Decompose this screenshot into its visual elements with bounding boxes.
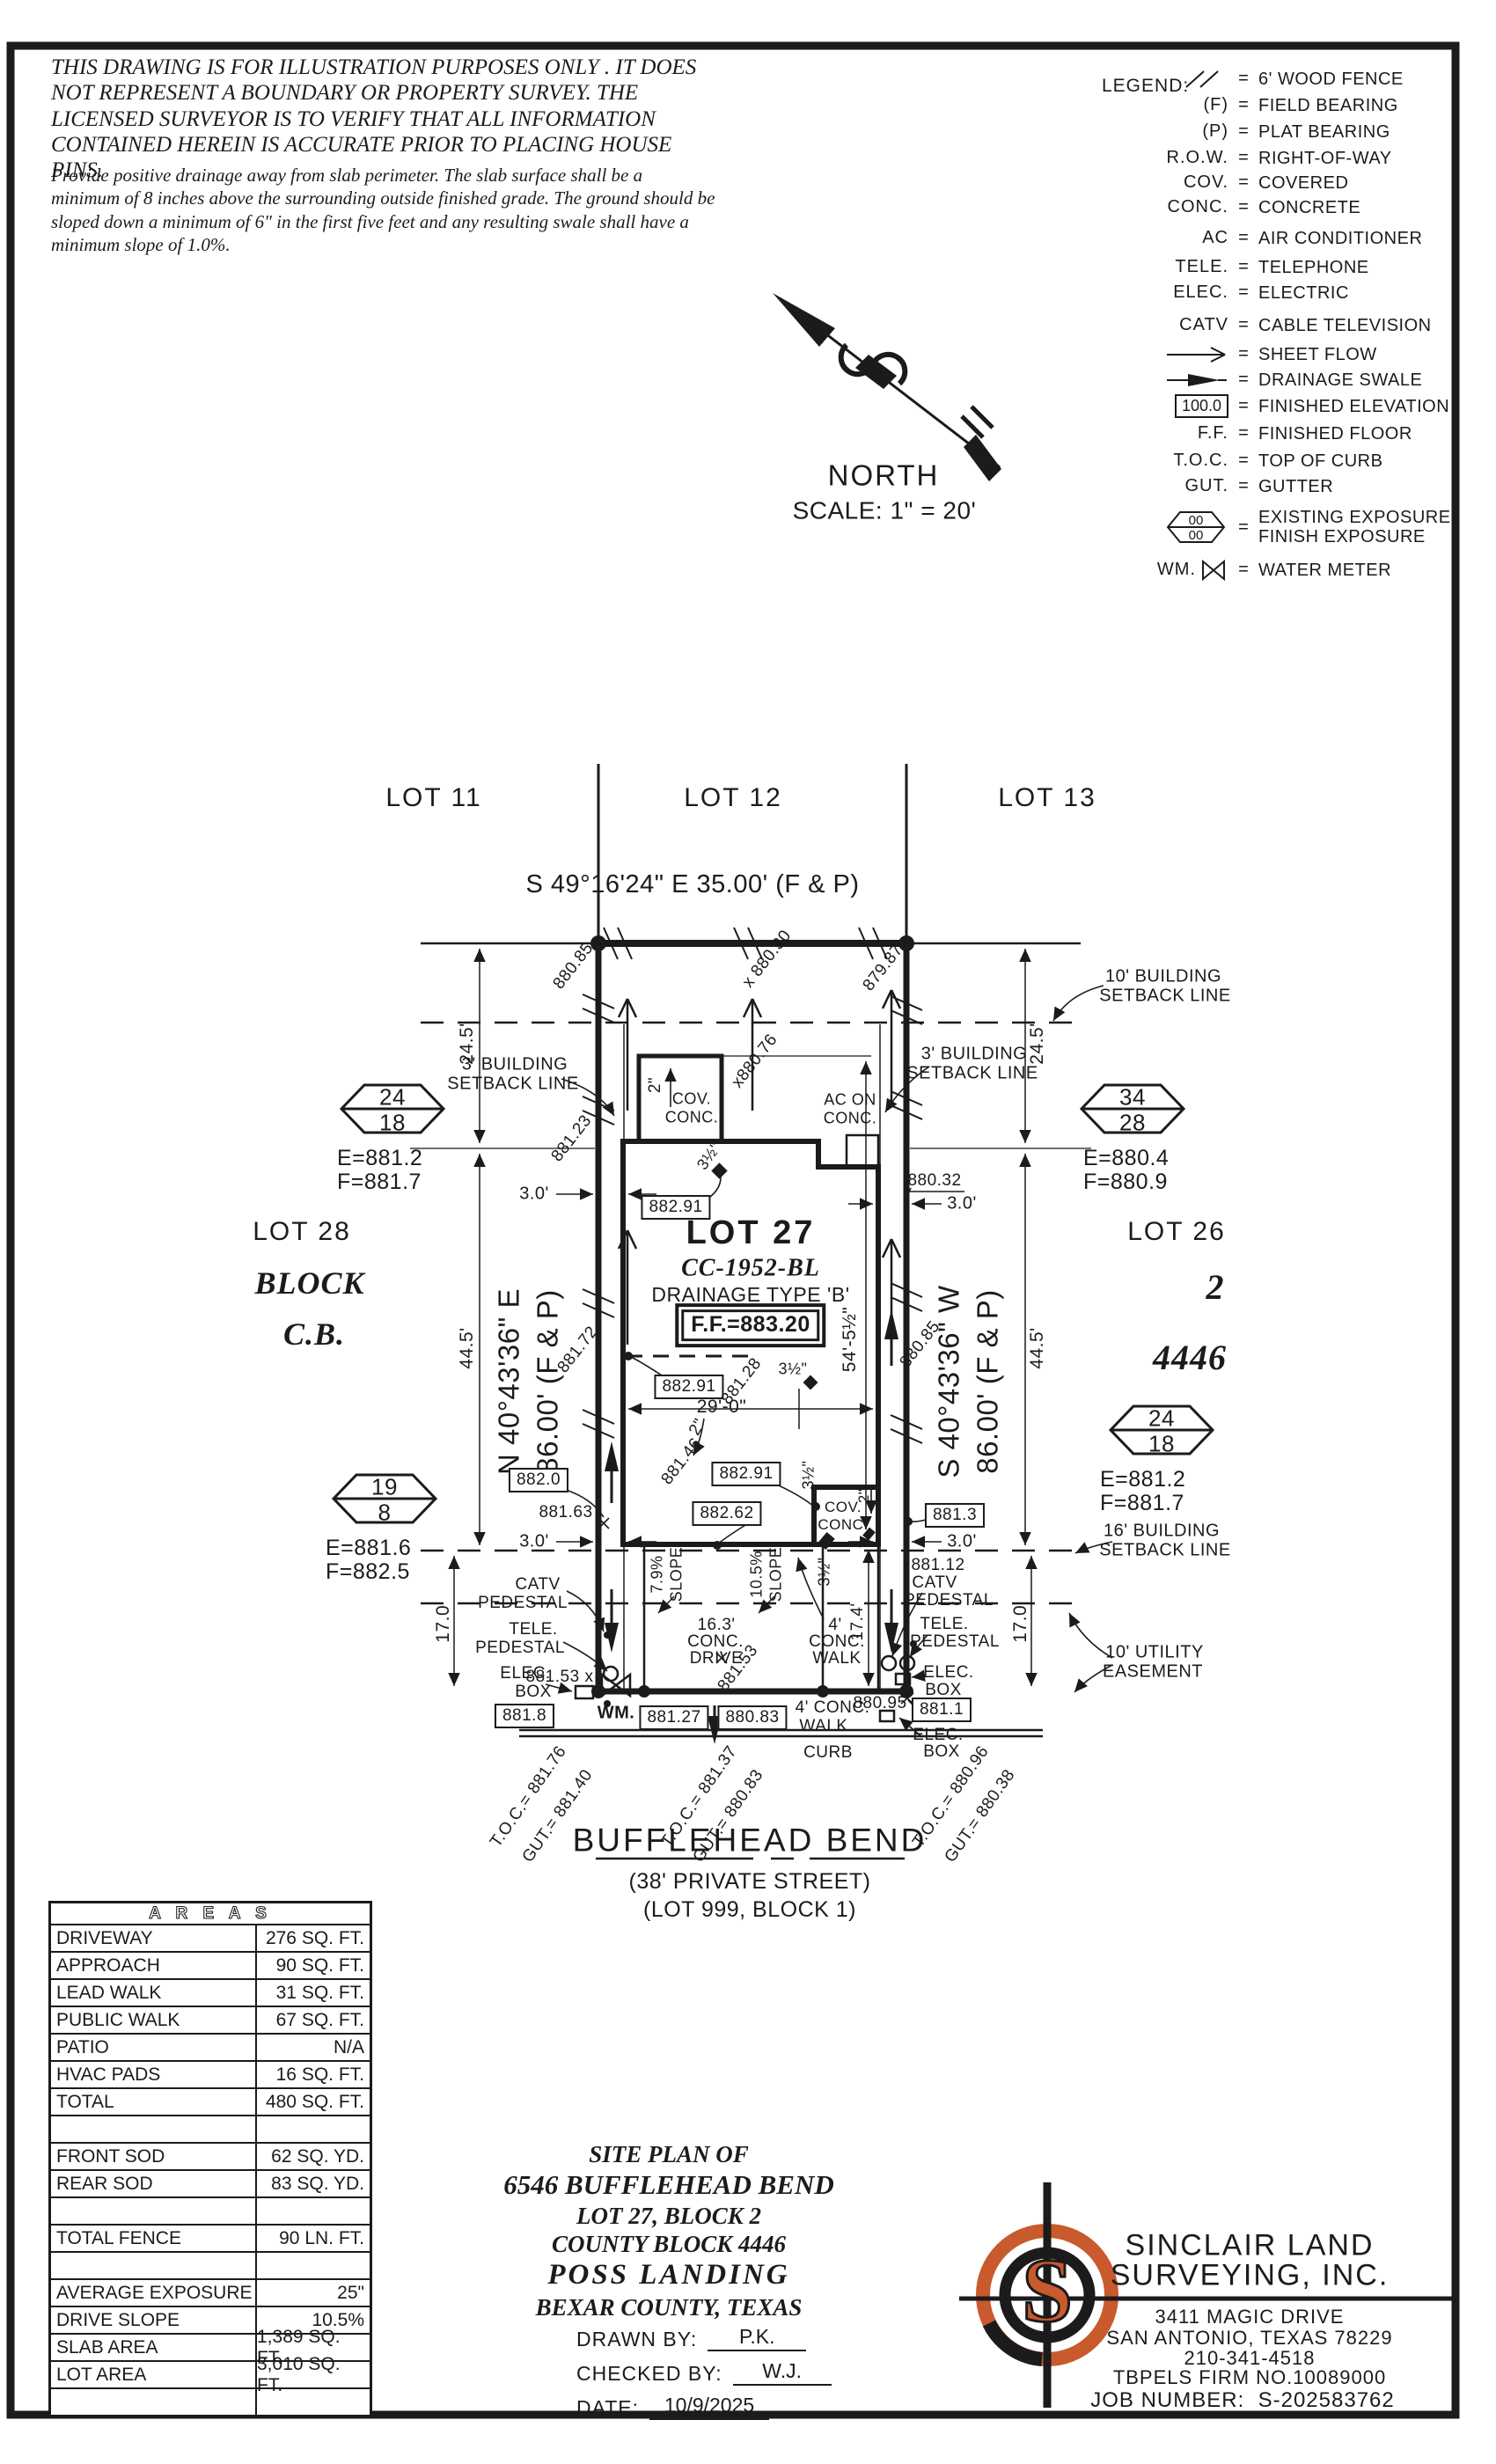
areas-row-label: LEAD WALK bbox=[51, 1980, 257, 2006]
areas-row-label: HVAC PADS bbox=[51, 2062, 257, 2087]
legend-label: WATER METER bbox=[1258, 561, 1391, 580]
legend-symbol: (P) bbox=[1144, 121, 1228, 142]
plat-label: BOX bbox=[515, 1684, 552, 1700]
plat-label: 19 bbox=[371, 1477, 398, 1499]
plat-label: 7.9% bbox=[649, 1555, 664, 1593]
plat-label: 28 bbox=[1119, 1112, 1146, 1134]
areas-table-row: PATION/A bbox=[51, 2035, 370, 2062]
title-block-line: SITE PLAN OF bbox=[458, 2140, 880, 2168]
plat-label: BLOCK bbox=[254, 1268, 364, 1298]
legend-symbol: AC bbox=[1144, 228, 1228, 248]
legend-symbol: T.O.C. bbox=[1144, 451, 1228, 471]
areas-row-value bbox=[257, 2198, 370, 2224]
plat-label: C.B. bbox=[283, 1319, 345, 1349]
plat-label: 44.5' bbox=[1029, 1327, 1046, 1368]
plat-label: 3.0' bbox=[947, 1196, 977, 1213]
legend-row: AC=AIR CONDITIONER bbox=[1144, 226, 1470, 250]
legend-equals: = bbox=[1228, 423, 1258, 444]
plat-label: E=881.2 bbox=[1100, 1470, 1185, 1491]
legend-label: AIR CONDITIONER bbox=[1258, 229, 1422, 248]
areas-row-label: APPROACH bbox=[51, 1953, 257, 1978]
legend-row: T.O.C.=TOP OF CURB bbox=[1144, 449, 1470, 473]
legend-symbol: 100.0 bbox=[1144, 394, 1228, 418]
plat-label: 86.00' (F & P) bbox=[973, 1289, 1001, 1474]
plat-label: E=881.6 bbox=[326, 1538, 411, 1559]
legend-row: 0000=EXISTING EXPOSURE FINISH EXPOSURE bbox=[1144, 503, 1470, 551]
plat-label: 86.00' (F & P) bbox=[533, 1289, 561, 1474]
plat-label: 16.3' bbox=[697, 1617, 735, 1633]
plat-label: 3' BUILDING bbox=[921, 1046, 1027, 1063]
plat-label: PEDESTAL bbox=[910, 1634, 1000, 1650]
areas-row-value: 3,010 SQ. FT. bbox=[257, 2362, 370, 2387]
plat-label: 18 bbox=[379, 1112, 406, 1134]
areas-row-label: FRONT SOD bbox=[51, 2144, 257, 2169]
legend-equals: = bbox=[1228, 69, 1258, 89]
legend-row: TELE.=TELEPHONE bbox=[1144, 255, 1470, 279]
legend-label: FINISHED FLOOR bbox=[1258, 424, 1412, 444]
areas-row-label bbox=[51, 2253, 257, 2278]
plat-label: CATV bbox=[912, 1575, 957, 1591]
plat-label: 44.5' bbox=[458, 1327, 476, 1368]
title-block-line: 6546 BUFFLEHEAD BEND bbox=[458, 2168, 880, 2201]
plat-label: LOT 12 bbox=[684, 786, 782, 811]
plat-label: 3½" bbox=[779, 1361, 808, 1376]
legend: =6' WOOD FENCE(F)=FIELD BEARING(P)=PLAT … bbox=[1144, 67, 1470, 582]
plat-label: 17.0' bbox=[1012, 1601, 1030, 1642]
title-block: SITE PLAN OF6546 BUFFLEHEAD BENDLOT 27, … bbox=[458, 2140, 880, 2321]
plat-label: 3.0' bbox=[519, 1186, 549, 1203]
plat-label: 3½" bbox=[817, 1558, 832, 1587]
legend-row: GUT.=GUTTER bbox=[1144, 474, 1470, 498]
plat-label: 881.12 bbox=[911, 1558, 964, 1573]
drawn-by-label: DRAWN BY: bbox=[576, 2328, 697, 2351]
legend-symbol: R.O.W. bbox=[1144, 148, 1228, 168]
svg-text:00: 00 bbox=[1189, 528, 1204, 543]
legend-equals: = bbox=[1228, 370, 1258, 390]
plat-label: CONC. bbox=[687, 1634, 744, 1650]
plat-label: 54'-5½" bbox=[841, 1307, 859, 1373]
legend-row: 100.0=FINISHED ELEVATION bbox=[1144, 394, 1470, 418]
areas-table-row: REAR SOD83 SQ. YD. bbox=[51, 2171, 370, 2198]
legend-label: SHEET FLOW bbox=[1258, 345, 1377, 364]
legend-equals: = bbox=[1228, 396, 1258, 416]
areas-table-row bbox=[51, 2389, 370, 2415]
job-number-label: JOB NUMBER: bbox=[1090, 2388, 1244, 2412]
legend-equals: = bbox=[1228, 560, 1258, 580]
areas-row-label: SLAB AREA bbox=[51, 2335, 257, 2360]
areas-row-value: 480 SQ. FT. bbox=[257, 2089, 370, 2115]
legend-label: 6' WOOD FENCE bbox=[1258, 70, 1404, 89]
plat-label: CONC. bbox=[665, 1110, 719, 1125]
legend-equals: = bbox=[1228, 228, 1258, 248]
plat-label: COV. bbox=[672, 1091, 711, 1106]
plat-label: EASEMENT bbox=[1103, 1664, 1203, 1681]
plat-label: LOT 26 bbox=[1127, 1220, 1226, 1245]
areas-table-title: A R E A S bbox=[51, 1903, 370, 1925]
plat-label: SETBACK LINE bbox=[1099, 1543, 1230, 1559]
legend-label: TOP OF CURB bbox=[1258, 451, 1382, 471]
plat-label: F=881.7 bbox=[337, 1172, 422, 1193]
areas-table-row: HVAC PADS16 SQ. FT. bbox=[51, 2062, 370, 2089]
plat-label: 29'-0" bbox=[697, 1398, 747, 1416]
areas-row-label: PUBLIC WALK bbox=[51, 2007, 257, 2033]
drainage-note: Provide positive drainage away from slab… bbox=[51, 164, 755, 257]
plat-label: 882.0 bbox=[509, 1468, 568, 1492]
plat-label: SLOPE bbox=[669, 1547, 684, 1602]
areas-table-row: LOT AREA3,010 SQ. FT. bbox=[51, 2362, 370, 2389]
plat-label: 881.1 bbox=[912, 1698, 972, 1722]
legend-row: =6' WOOD FENCE bbox=[1144, 67, 1470, 91]
plat-label: 4' bbox=[828, 1617, 841, 1633]
legend-label: CONCRETE bbox=[1258, 198, 1360, 217]
plat-label: F=882.5 bbox=[326, 1562, 410, 1583]
plat-label: 16' BUILDING bbox=[1104, 1523, 1220, 1540]
legend-row: CONC.=CONCRETE bbox=[1144, 195, 1470, 219]
plat-label: 2 bbox=[1206, 1271, 1225, 1304]
logo-letter: S bbox=[1022, 2238, 1073, 2343]
areas-row-value: 62 SQ. YD. bbox=[257, 2144, 370, 2169]
areas-row-label bbox=[51, 2198, 257, 2224]
legend-equals: = bbox=[1228, 95, 1258, 115]
legend-label: PLAT BEARING bbox=[1258, 122, 1390, 142]
plat-label: CC-1952-BL bbox=[681, 1258, 820, 1281]
areas-row-value bbox=[257, 2253, 370, 2278]
svg-text:00: 00 bbox=[1189, 513, 1204, 528]
site-plan-sheet: THIS DRAWING IS FOR ILLUSTRATION PURPOSE… bbox=[0, 0, 1496, 2464]
plat-label: 24 bbox=[379, 1087, 406, 1109]
plat-label: LOT 28 bbox=[253, 1220, 351, 1245]
areas-row-label: LOT AREA bbox=[51, 2362, 257, 2387]
plat-label: 2" bbox=[857, 1489, 871, 1504]
areas-row-label: TOTAL FENCE bbox=[51, 2226, 257, 2251]
plat-label: LOT 13 bbox=[998, 786, 1096, 811]
plat-label: 881.27 bbox=[639, 1705, 708, 1730]
plat-label: 10' BUILDING bbox=[1105, 969, 1221, 986]
legend-symbol bbox=[1144, 370, 1228, 391]
plat-label: BOX bbox=[925, 1683, 962, 1698]
legend-label: DRAINAGE SWALE bbox=[1258, 370, 1422, 390]
company-firm-number: TBPELS FIRM NO.10089000 bbox=[1113, 2366, 1386, 2389]
plat-label: 881.3 bbox=[925, 1503, 985, 1528]
legend-equals: = bbox=[1228, 517, 1258, 538]
plat-label: 2" bbox=[648, 1077, 664, 1093]
plat-label: CONC. bbox=[824, 1111, 877, 1126]
date-label: DATE: bbox=[576, 2396, 639, 2420]
legend-symbol: WM. bbox=[1144, 559, 1228, 582]
plat-label: 3.0' bbox=[947, 1534, 977, 1551]
legend-row: R.O.W.=RIGHT-OF-WAY bbox=[1144, 146, 1470, 170]
plat-label: 880.95 bbox=[853, 1696, 906, 1712]
areas-row-value bbox=[257, 2389, 370, 2415]
plat-label: SCALE: 1" = 20' bbox=[793, 500, 977, 524]
legend-label: TELEPHONE bbox=[1258, 258, 1369, 277]
plat-label: TELE. bbox=[509, 1622, 557, 1638]
plat-label: 881.63 bbox=[539, 1505, 592, 1521]
plat-label: N 40°43'36" E bbox=[495, 1288, 522, 1475]
legend-symbol bbox=[1144, 68, 1228, 91]
plat-label: WALK bbox=[812, 1651, 861, 1667]
legend-symbol: TELE. bbox=[1144, 257, 1228, 277]
plat-label: 880.32 bbox=[907, 1173, 961, 1189]
plat-label: PEDESTAL bbox=[475, 1640, 565, 1656]
plat-label: PEDESTAL bbox=[478, 1595, 568, 1611]
plat-label: (LOT 999, BLOCK 1) bbox=[643, 1900, 856, 1921]
plat-label: 24 bbox=[1148, 1408, 1175, 1430]
areas-table-row bbox=[51, 2198, 370, 2226]
legend-row: =DRAINAGE SWALE bbox=[1144, 368, 1470, 392]
plat-label: 4446 bbox=[1153, 1341, 1227, 1375]
legend-symbol: (F) bbox=[1144, 95, 1228, 115]
areas-table-row: FRONT SOD62 SQ. YD. bbox=[51, 2144, 370, 2171]
plat-label: 3' BUILDING bbox=[462, 1057, 568, 1074]
areas-row-label bbox=[51, 2389, 257, 2415]
legend-label: RIGHT-OF-WAY bbox=[1258, 149, 1392, 168]
legend-row: CATV=CABLE TELEVISION bbox=[1144, 313, 1470, 337]
areas-table-row: AVERAGE EXPOSURE25" bbox=[51, 2280, 370, 2307]
plat-label: 17.0' bbox=[435, 1601, 452, 1642]
plat-label: S 40°43'36" W bbox=[935, 1285, 962, 1478]
legend-equals: = bbox=[1228, 172, 1258, 193]
plat-label: SLOPE bbox=[768, 1547, 783, 1602]
plat-label: CONC. bbox=[818, 1518, 868, 1532]
plat-label: TELE. bbox=[920, 1617, 968, 1632]
legend-equals: = bbox=[1228, 344, 1258, 364]
job-number-value: S-202583762 bbox=[1258, 2388, 1395, 2412]
plat-label: (38' PRIVATE STREET) bbox=[628, 1872, 870, 1893]
date-value: 10/9/2025 bbox=[649, 2394, 769, 2420]
legend-label: FINISHED ELEVATION bbox=[1258, 397, 1449, 416]
plat-label: F=880.9 bbox=[1083, 1172, 1168, 1193]
company-address-line: 3411 MAGIC DRIVE bbox=[1155, 2306, 1345, 2328]
plat-label: CURB bbox=[803, 1745, 853, 1761]
areas-row-value: 31 SQ. FT. bbox=[257, 1980, 370, 2006]
legend-symbol: F.F. bbox=[1144, 423, 1228, 444]
areas-table-row: TOTAL FENCE90 LN. FT. bbox=[51, 2226, 370, 2253]
legend-equals: = bbox=[1228, 451, 1258, 471]
areas-row-label: REAR SOD bbox=[51, 2171, 257, 2196]
legend-label: ELECTRIC bbox=[1258, 283, 1349, 303]
plat-label: 10.5% bbox=[749, 1551, 764, 1598]
plat-label: SETBACK LINE bbox=[906, 1066, 1038, 1082]
legend-symbol: GUT. bbox=[1144, 476, 1228, 496]
plat-label: WM. bbox=[598, 1705, 635, 1722]
plat-label: NORTH bbox=[828, 461, 940, 488]
legend-equals: = bbox=[1228, 315, 1258, 335]
legend-row: ELEC.=ELECTRIC bbox=[1144, 281, 1470, 304]
legend-row: (P)=PLAT BEARING bbox=[1144, 120, 1470, 143]
areas-table-row bbox=[51, 2116, 370, 2144]
plat-label: 34 bbox=[1119, 1087, 1146, 1109]
company-name-line2: SURVEYING, INC. bbox=[1111, 2259, 1390, 2293]
plat-label: 17.4' bbox=[850, 1602, 866, 1640]
checked-by-value: W.J. bbox=[733, 2359, 832, 2386]
areas-row-value: N/A bbox=[257, 2035, 370, 2060]
plat-label: PEDESTAL bbox=[904, 1593, 994, 1609]
areas-row-label: AVERAGE EXPOSURE bbox=[51, 2280, 257, 2306]
plat-label: ELEC. bbox=[923, 1665, 973, 1681]
drawn-by-value: P.K. bbox=[708, 2325, 806, 2351]
plat-label: CATV bbox=[515, 1577, 560, 1593]
legend-label: COVERED bbox=[1258, 173, 1348, 193]
title-block-line: COUNTY BLOCK 4446 bbox=[458, 2230, 880, 2258]
areas-row-value: 16 SQ. FT. bbox=[257, 2062, 370, 2087]
areas-table-row: DRIVEWAY276 SQ. FT. bbox=[51, 1925, 370, 1953]
title-block-line: BEXAR COUNTY, TEXAS bbox=[458, 2293, 880, 2321]
legend-equals: = bbox=[1228, 476, 1258, 496]
plat-label: ELEC. bbox=[913, 1727, 963, 1743]
legend-symbol: ELEC. bbox=[1144, 282, 1228, 303]
areas-table-row bbox=[51, 2253, 370, 2280]
legend-symbol bbox=[1144, 344, 1228, 365]
plat-label: WALK bbox=[799, 1719, 847, 1734]
areas-row-label: DRIVE SLOPE bbox=[51, 2307, 257, 2333]
legend-symbol: CONC. bbox=[1144, 197, 1228, 217]
plat-label: SETBACK LINE bbox=[1099, 988, 1230, 1005]
legend-label: EXISTING EXPOSURE FINISH EXPOSURE bbox=[1258, 508, 1451, 546]
plat-label: E=881.2 bbox=[337, 1148, 422, 1170]
areas-row-label: PATIO bbox=[51, 2035, 257, 2060]
areas-row-label: DRIVEWAY bbox=[51, 1925, 257, 1951]
areas-row-value: 90 SQ. FT. bbox=[257, 1953, 370, 1978]
areas-row-value: 90 LN. FT. bbox=[257, 2226, 370, 2251]
areas-table-row: PUBLIC WALK67 SQ. FT. bbox=[51, 2007, 370, 2035]
areas-row-value: 83 SQ. YD. bbox=[257, 2171, 370, 2196]
areas-table: A R E A S DRIVEWAY276 SQ. FT.APPROACH90 … bbox=[48, 1901, 372, 2417]
plat-label: LOT 27 bbox=[686, 1217, 816, 1249]
plat-label: 881.8 bbox=[495, 1704, 554, 1728]
plat-label: AC ON bbox=[824, 1092, 876, 1107]
legend-equals: = bbox=[1228, 148, 1258, 168]
legend-row: =SHEET FLOW bbox=[1144, 342, 1470, 366]
legend-symbol: 0000 bbox=[1144, 503, 1228, 551]
legend-equals: = bbox=[1228, 257, 1258, 277]
areas-row-value: 276 SQ. FT. bbox=[257, 1925, 370, 1951]
plat-label: 24.5' bbox=[1029, 1023, 1046, 1064]
legend-label: FIELD BEARING bbox=[1258, 96, 1398, 115]
areas-row-value: 67 SQ. FT. bbox=[257, 2007, 370, 2033]
plat-label: S 49°16'24" E 35.00' (F & P) bbox=[525, 873, 859, 898]
legend-label: CABLE TELEVISION bbox=[1258, 316, 1432, 335]
plat-label: 882.62 bbox=[692, 1501, 761, 1526]
plat-label: F=881.7 bbox=[1100, 1493, 1184, 1514]
legend-row: COV.=COVERED bbox=[1144, 171, 1470, 194]
job-number: JOB NUMBER: S-202583762 bbox=[1090, 2388, 1395, 2413]
plat-label: E=880.4 bbox=[1083, 1148, 1169, 1170]
legend-symbol: CATV bbox=[1144, 315, 1228, 335]
plat-label: 8 bbox=[378, 1502, 392, 1524]
plat-label: 882.91 bbox=[711, 1462, 781, 1486]
checked-by-label: CHECKED BY: bbox=[576, 2362, 722, 2386]
legend-equals: = bbox=[1228, 121, 1258, 142]
legend-row: F.F.=FINISHED FLOOR bbox=[1144, 422, 1470, 445]
plat-label: LOT 11 bbox=[385, 786, 481, 811]
areas-row-value bbox=[257, 2116, 370, 2142]
plat-label: 882.91 bbox=[654, 1375, 723, 1399]
areas-table-row: APPROACH90 SQ. FT. bbox=[51, 1953, 370, 1980]
title-block-line: LOT 27, BLOCK 2 bbox=[458, 2202, 880, 2230]
signature-fields: DRAWN BY: P.K. CHECKED BY: W.J. DATE: 10… bbox=[576, 2325, 832, 2428]
areas-row-label bbox=[51, 2116, 257, 2142]
plat-label: F.F.=883.20 bbox=[681, 1309, 819, 1341]
title-block-line: POSS LANDING bbox=[458, 2258, 880, 2293]
plat-label: DRAINAGE TYPE 'B' bbox=[651, 1286, 849, 1305]
legend-symbol: COV. bbox=[1144, 172, 1228, 193]
areas-row-value: 25" bbox=[257, 2280, 370, 2306]
plat-label: 18 bbox=[1148, 1434, 1175, 1456]
plat-label: 3½" bbox=[801, 1461, 816, 1490]
plat-label: BUFFLEHEAD BEND bbox=[573, 1824, 928, 1855]
legend-row: WM.=WATER METER bbox=[1144, 558, 1470, 582]
plat-label: 881.53 x bbox=[526, 1669, 594, 1685]
north-arrow-icon bbox=[773, 293, 1001, 481]
areas-table-row: LEAD WALK31 SQ. FT. bbox=[51, 1980, 370, 2007]
plat-label: 880.83 bbox=[717, 1705, 787, 1730]
legend-equals: = bbox=[1228, 197, 1258, 217]
legend-label: GUTTER bbox=[1258, 477, 1333, 496]
areas-row-label: TOTAL bbox=[51, 2089, 257, 2115]
legend-row: (F)=FIELD BEARING bbox=[1144, 93, 1470, 117]
plat-label: 10' UTILITY bbox=[1105, 1645, 1204, 1661]
legend-equals: = bbox=[1228, 282, 1258, 303]
plat-label: BOX bbox=[923, 1744, 960, 1760]
areas-table-row: TOTAL480 SQ. FT. bbox=[51, 2089, 370, 2116]
plat-label: 3.0' bbox=[519, 1534, 549, 1551]
plat-label: SETBACK LINE bbox=[447, 1076, 578, 1093]
